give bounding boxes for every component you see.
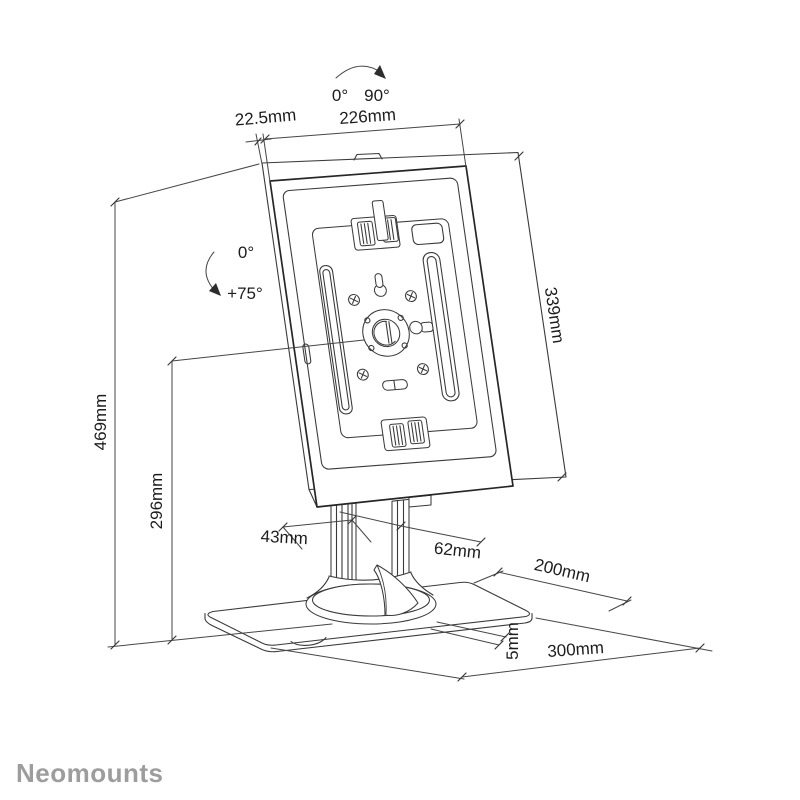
oval-slot <box>382 379 408 390</box>
rotation-arc <box>336 65 386 79</box>
rotation-start-label: 0° <box>332 86 348 105</box>
base-depth-label: 300mm <box>547 638 605 661</box>
height-296-label: 296mm <box>147 473 166 530</box>
tablet-stand-dimension-diagram: 0° 90° 22.5mm 226mm 0° +75° 339mm 469mm … <box>0 0 800 800</box>
tilt-start-label: 0° <box>238 243 254 262</box>
bottom-clamp-bracket <box>381 417 430 451</box>
base-dome <box>306 565 436 624</box>
tilt-end-label: +75° <box>227 284 263 303</box>
base-thickness-label: 5mm <box>503 622 522 660</box>
width-label: 226mm <box>339 105 397 128</box>
neomounts-logo: Neomounts <box>16 758 164 788</box>
pole-width-label: 62mm <box>433 539 482 563</box>
height-469-label: 469mm <box>91 394 110 451</box>
pole-depth-label: 43mm <box>260 527 308 548</box>
tilt-arc <box>206 252 221 296</box>
depth-label: 22.5mm <box>234 105 297 129</box>
rotation-end-label: 90° <box>364 86 390 105</box>
